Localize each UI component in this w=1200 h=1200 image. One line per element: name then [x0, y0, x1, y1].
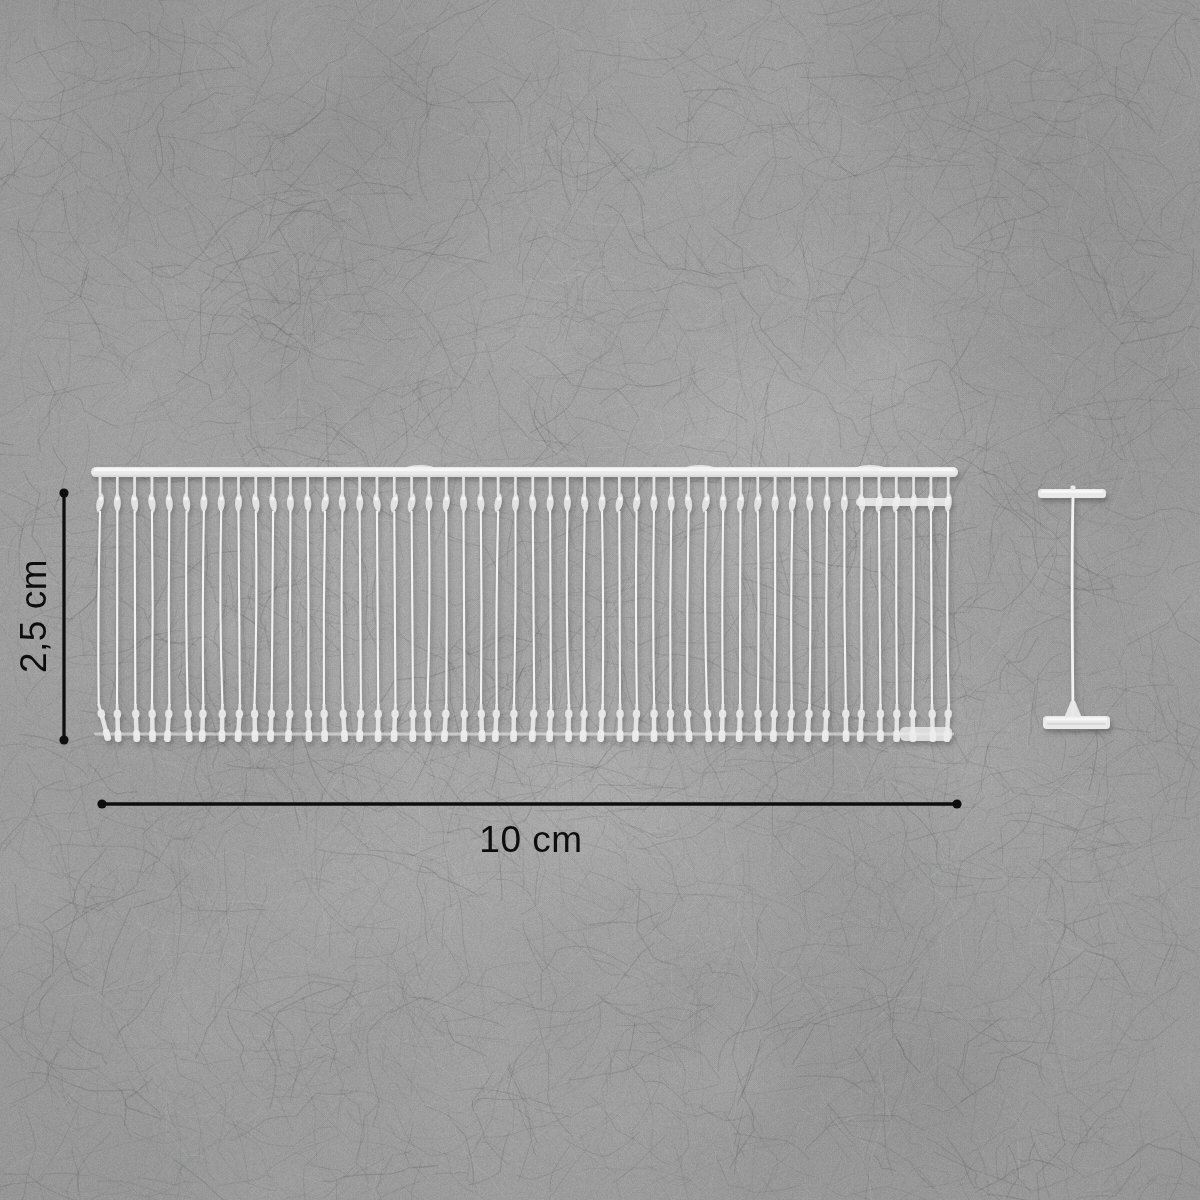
- pin-paddle: [597, 704, 607, 742]
- tag-pin: [94, 475, 112, 742]
- pin-head: [268, 493, 278, 514]
- pin-head: [477, 493, 486, 514]
- pin-paddle: [339, 704, 349, 742]
- tag-pin: [841, 475, 850, 742]
- pin-head: [614, 493, 625, 514]
- pin-head: [320, 493, 331, 514]
- pin-head: [841, 493, 848, 513]
- pin-paddle: [650, 704, 658, 742]
- pin-head: [406, 492, 417, 513]
- tag-pin: [460, 475, 468, 742]
- pin-head: [287, 493, 294, 513]
- pin-head: [546, 493, 554, 513]
- tag-pin: [909, 475, 918, 742]
- pin-paddle: [424, 704, 432, 742]
- pin-paddle: [546, 704, 555, 742]
- pin-head: [668, 493, 675, 513]
- height-dimension-label: 2,5 cm: [13, 559, 55, 673]
- pin-head: [736, 493, 745, 514]
- tag-pin: [769, 475, 778, 742]
- pin-head: [511, 493, 519, 513]
- pin-paddle: [477, 704, 486, 742]
- pin-paddle: [893, 704, 901, 742]
- pin-head: [700, 492, 711, 513]
- tag-pin: [786, 475, 797, 742]
- tag-pin: [546, 475, 555, 742]
- pin-paddle: [95, 703, 112, 742]
- pin-paddle: [374, 704, 382, 742]
- pin-paddle: [234, 704, 243, 742]
- tag-pin: [856, 475, 866, 742]
- tag-pin: [251, 475, 261, 742]
- pin-paddle: [616, 704, 623, 742]
- tag-pin: [874, 475, 884, 742]
- single-tag-pin: [1038, 486, 1110, 730]
- pin-head: [356, 493, 363, 513]
- pin-head: [493, 493, 504, 514]
- pin-head: [425, 493, 432, 513]
- tag-pin: [804, 475, 814, 742]
- pin-head: [200, 493, 207, 513]
- right-runner-segment: [856, 498, 950, 506]
- pin-paddle: [284, 704, 293, 742]
- pin-paddle: [305, 704, 313, 742]
- pin-head: [460, 493, 468, 513]
- tag-pin: [735, 475, 745, 742]
- pin-paddle: [877, 704, 884, 742]
- tag-pin: [700, 475, 712, 742]
- pin-paddle: [769, 704, 778, 742]
- tag-pin: [304, 475, 313, 742]
- pin-head: [650, 493, 657, 513]
- tag-pin: [163, 475, 173, 742]
- pin-head: [114, 493, 121, 513]
- pin-head: [720, 493, 727, 513]
- pin-head: [564, 493, 571, 513]
- pin-paddle: [251, 704, 259, 742]
- pin-paddle: [460, 704, 468, 742]
- tag-pin: [284, 475, 294, 742]
- pin-paddle: [667, 704, 675, 742]
- tag-pin: [753, 475, 763, 742]
- pin-head: [632, 493, 642, 514]
- pin-paddle: [579, 704, 588, 742]
- pin-head: [130, 493, 139, 514]
- pin-paddle: [491, 704, 500, 742]
- tag-pin: [597, 475, 607, 742]
- pin-paddle: [148, 704, 156, 742]
- pin-head: [165, 493, 174, 514]
- pin-paddle: [390, 704, 399, 742]
- tag-pin: [424, 475, 433, 742]
- dimension-dot: [97, 799, 106, 808]
- pin-head: [753, 493, 763, 514]
- pin-head: [684, 493, 694, 514]
- pin-head: [442, 493, 451, 514]
- pin-paddle: [510, 704, 518, 742]
- pin-paddle: [786, 704, 795, 742]
- pin-head: [338, 493, 346, 513]
- tag-pin: [491, 475, 503, 742]
- pin-paddle: [683, 704, 693, 742]
- pin-head: [304, 493, 312, 513]
- tag-pin: [667, 475, 675, 742]
- pin-paddle: [821, 704, 830, 742]
- tag-pin: [372, 475, 382, 742]
- tag-pin: [614, 475, 625, 742]
- tag-pin: [234, 475, 243, 742]
- tag-pin: [267, 475, 279, 742]
- tag-pin: [718, 475, 727, 742]
- pin-paddle: [754, 704, 762, 742]
- tag-pin: [198, 475, 207, 742]
- pin-head: [806, 493, 814, 513]
- pin-head: [772, 493, 779, 513]
- tag-pin: [440, 475, 450, 742]
- pin-paddle: [528, 704, 538, 742]
- pin-paddle: [218, 704, 226, 742]
- pin-paddle: [132, 704, 141, 742]
- pin-paddle: [804, 704, 813, 742]
- dimension-dot: [952, 799, 961, 808]
- pin-head: [182, 493, 192, 514]
- pin-head: [251, 493, 261, 514]
- tag-pin: [113, 475, 122, 742]
- pin-paddle: [440, 704, 450, 742]
- pin-head: [234, 493, 242, 513]
- pin-paddle: [842, 704, 850, 742]
- tag-pin: [320, 475, 331, 742]
- tag-pin: [406, 475, 417, 742]
- pin-head: [372, 493, 382, 514]
- pin-paddle: [356, 704, 365, 742]
- tag-pin: [217, 475, 226, 742]
- tag-pin: [579, 475, 589, 742]
- pin-paddle: [198, 704, 207, 742]
- tag-pin: [389, 475, 400, 742]
- pin-paddle: [718, 704, 726, 742]
- pin-head: [528, 493, 537, 514]
- dimension-dot: [59, 488, 68, 497]
- tag-pin: [182, 475, 193, 742]
- pin-paddle: [409, 704, 417, 742]
- pin-paddle: [267, 704, 276, 742]
- pin-paddle: [113, 704, 122, 742]
- pin-paddle: [632, 704, 641, 742]
- pin-head: [147, 493, 157, 514]
- pin-paddle: [735, 704, 743, 742]
- pin-paddle: [856, 704, 865, 742]
- tag-pin: [510, 475, 520, 742]
- pin-paddle: [565, 704, 573, 742]
- tag-pin: [891, 475, 902, 742]
- pin-head: [94, 492, 105, 513]
- width-dimension-label: 10 cm: [479, 819, 582, 861]
- pin-head: [788, 493, 798, 514]
- dimension-dot: [59, 735, 68, 744]
- tag-pin: [338, 475, 348, 742]
- pin-head: [580, 493, 589, 514]
- tag-pin: [147, 475, 157, 742]
- pin-head: [823, 493, 830, 513]
- tag-pin: [130, 475, 141, 742]
- tag-pin: [564, 475, 573, 742]
- tag-pin: [821, 475, 830, 742]
- tag-pin: [683, 475, 693, 742]
- pin-head: [598, 493, 606, 513]
- tag-pin: [477, 475, 486, 742]
- tag-pin-strip: [91, 465, 958, 742]
- pin-head: [217, 493, 224, 513]
- pin-paddle: [703, 704, 712, 742]
- tag-pin-scene: [0, 0, 1200, 1200]
- tag-pin: [528, 475, 538, 742]
- tag-pin: [650, 475, 658, 742]
- pin-paddle: [320, 704, 328, 742]
- tag-pin: [356, 475, 365, 742]
- tag-pin: [927, 475, 937, 742]
- tag-pin: [943, 475, 953, 742]
- tag-pin: [632, 475, 642, 742]
- pin-head: [389, 493, 400, 514]
- pin-paddle: [184, 704, 193, 742]
- pin-paddle: [163, 704, 173, 742]
- photo-stage: 2,5 cm 10 cm: [0, 0, 1200, 1200]
